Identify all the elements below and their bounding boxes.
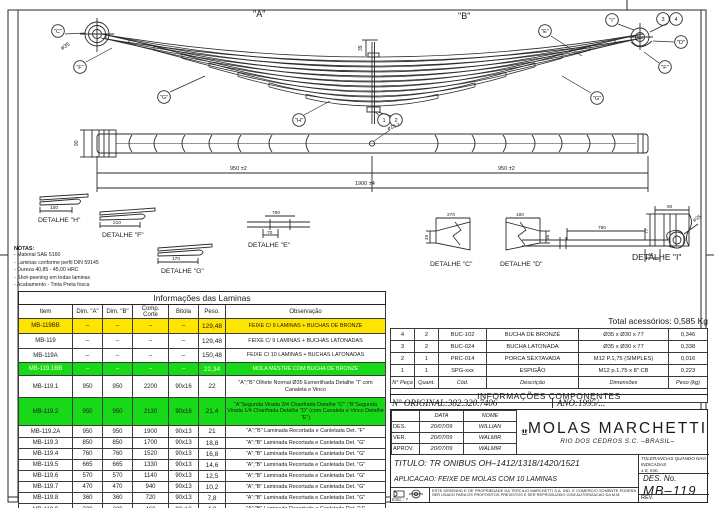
componentes-col-header: Peso (kg) [669,377,708,389]
laminas-cell-dim-b: 470 [103,482,133,493]
laminas-cell-bitola: 90x13 [169,426,199,438]
svg-text:3: 3 [661,17,664,23]
notes-block: NOTAS: - Material SAE 5160- Laminas conf… [14,246,144,290]
laminas-cell-dim-a: – [73,319,103,334]
laminas-cell-bitola: 90x13 [169,482,199,493]
laminas-table: Informações das Laminas ItemDim. "A"Dim.… [18,291,386,508]
laminas-col-header: Observação [226,305,386,319]
svg-text:"G": "G" [160,95,168,101]
laminas-cell-item: MB-119.7 [19,482,73,493]
laminas-cell-item: MB-119.4 [19,449,73,460]
laminas-cell-dim-b: 360 [103,493,133,504]
laminas-cell-peso: 21 [199,426,226,438]
componentes-cell: BUC-024 [439,341,487,353]
componentes-col-header: Descrição [487,377,579,389]
laminas-cell-corte: – [133,349,169,363]
detail-g-dim: 170 [172,256,180,262]
detail-g-label: DETALHE "G" [161,268,204,275]
detail-h-sketch [40,194,88,213]
laminas-cell-dim-b: – [103,319,133,334]
dim-plan-width: 90 [74,140,80,146]
laminas-cell-dim-a: 850 [73,438,103,449]
laminas-cell-dim-a: – [73,334,103,349]
componentes-cell: M12 p.1,75 x 8" CB [579,365,669,377]
svg-text:"I": "I" [609,18,615,24]
laminas-cell-corte: 1330 [133,460,169,471]
laminas-cell-item: MB-119.6 [19,471,73,482]
laminas-cell-dim-b: 230 [103,504,133,508]
laminas-cell-obs: FEIXE C/ 9 LAMINAS + BUCHAS DE BRONZE [226,319,386,334]
dim-right-half: 950 ±2 [498,166,515,172]
laminas-cell-obs: "A";"B" Laminada Recortada e Canletada D… [226,449,386,460]
note-item: - Dureza 40,85 - 45,00 HRC [14,267,144,275]
laminas-cell-corte: 460 [133,504,169,508]
approval-cell: 20/07/09 [420,444,464,455]
view-label-a: "A" [253,9,265,19]
laminas-cell-dim-a: – [73,349,103,363]
laminas-cell-bitola: 90x13 [169,471,199,482]
svg-text:"E": "E" [541,29,549,35]
laminas-cell-obs: "A";"B" Laminada Recortada e Canletada D… [226,438,386,449]
laminas-cell-item: MB-119A [19,349,73,363]
approval-cell: WALMIR [464,433,517,444]
laminas-cell-bitola: 90x13 [169,438,199,449]
approval-cell: 20/07/09 [420,422,464,433]
laminas-cell-dim-b: – [103,349,133,363]
legal-text: ESTE DESENHO E DE PROPRIEDADE DA TERCILI… [430,488,638,502]
laminas-cell-corte: – [133,334,169,349]
componentes-cell: 0,016 [669,353,708,365]
laminas-cell-bitola: 90x13 [169,493,199,504]
laminas-row: MB-119.2A950950190090x1321"A";"B" Lamina… [19,426,386,438]
svg-text:"C": "C" [54,29,62,35]
laminas-cell-dim-b: 850 [103,438,133,449]
laminas-row: MB-119.2950950213090x1621,4"A"Segunda Vi… [19,398,386,426]
balloon-g_left: "G" [158,91,171,104]
componentes-cell: ESPIGÃO [487,365,579,377]
total-acessorios: Total acessórios: 0,585 Kg [390,316,708,326]
approval-cell: APROV. [392,444,420,455]
dim-total-length: 1900 ±4 [355,181,375,187]
laminas-cell-obs: FEIXE C/ 9 LAMINAS + BUCHAS LATONADAS [226,334,386,349]
laminas-row: MB-119.5665665133090x1314,6"A";"B" Lamin… [19,460,386,471]
approval-cell: DES. [392,422,420,433]
componentes-cell: 1 [415,353,439,365]
componentes-cell: Ø35 x Ø30 x 77 [579,329,669,341]
detail-c-sketch [426,218,470,250]
approval-cell: 20/07/09 [420,433,464,444]
drawing-number-box: DES. No. MB–119 [639,473,709,494]
componentes-cell: PORCA SEXTAVADA [487,353,579,365]
componentes-col-header: Quant. [415,377,439,389]
componentes-cell: 2 [415,341,439,353]
detail-i-dim-w: 90 [667,204,673,210]
laminas-cell-dim-a: 950 [73,426,103,438]
componentes-row: 42BUC-102BUCHA DE BRONZEØ35 x Ø30 x 770,… [391,329,708,341]
laminas-cell-obs: "A";"B" Olhete Normal Ø35 Esmerilhada De… [226,376,386,398]
ano: ANO:1995/... [552,398,708,408]
laminas-row: MB-119.1BB––––22,34MOLA MESTRE COM BUCHA… [19,363,386,376]
balloon-g_right: "G" [591,92,604,105]
laminas-col-header: Dim. "A" [73,305,103,319]
detail-c-dim-w: 270 [447,212,455,218]
titulo-value: TR ONIBUS OH–1412/1318/1420/1521 [429,458,579,468]
laminas-cell-dim-a: 760 [73,449,103,460]
componentes-table: 42BUC-102BUCHA DE BRONZEØ35 x Ø30 x 770,… [390,328,708,403]
laminas-cell-peso: 10,2 [199,482,226,493]
laminas-cell-dim-a: 665 [73,460,103,471]
componentes-cell: SPG-xxx [439,365,487,377]
laminas-cell-obs: "A";"B" Laminada Recortada e Canletada D… [226,426,386,438]
laminas-cell-dim-b: – [103,334,133,349]
numero-original: N° ORIGINAL:382.320.7406 [390,398,552,408]
laminas-row: MB-119.3850850170090x1318,8"A";"B" Lamin… [19,438,386,449]
approval-row: APROV.20/07/09WALMIR [392,444,517,455]
laminas-col-header: Comp. Corte [133,305,169,319]
laminas-cell-dim-b: 950 [103,376,133,398]
laminas-col-header: Dim. "B" [103,305,133,319]
laminas-row: MB-119.1950950220090x1622"A";"B" Olhete … [19,376,386,398]
detail-f-dim: 210 [113,220,121,226]
laminas-col-header: Peso. [199,305,226,319]
laminas-cell-corte: 1700 [133,438,169,449]
laminas-cell-bitola: – [169,334,199,349]
laminas-cell-bitola: 90x16 [169,376,199,398]
approval-row: DES.20/07/09WILLIAN [392,422,517,433]
tolerances-line1: TOLERANCIAS QUANDO NAO INDICADAS [641,456,707,468]
componentes-cell: 1 [391,365,415,377]
marchetti-logo-icon [521,413,528,451]
componentes-row: 32BUC-024BUCHA LATONADAØ35 x Ø30 x 770,3… [391,341,708,353]
detail-e-label: DETALHE "E" [248,242,291,249]
laminas-cell-corte: 940 [133,482,169,493]
laminas-cell-peso: 7,8 [199,493,226,504]
laminas-cell-peso: 129,48 [199,319,226,334]
detail-i-label: DETALHE "I" [632,252,681,262]
view-label-b: "B" [458,11,470,21]
detail-f-sketch [100,208,155,228]
note-item: - Acabamento - Tinta Preta fosca [14,282,144,290]
laminas-cell-obs: MOLA MESTRE COM BUCHA DE BRONZE [226,363,386,376]
laminas-cell-obs: "A";"B" Laminada Recortada e Canletada D… [226,504,386,508]
laminas-cell-obs: "A"Segunda Virada 3/4 Chanfrada Detalhe … [226,398,386,426]
laminas-cell-dim-a: 230 [73,504,103,508]
laminas-row: MB-119.836036072090x137,8"A";"B" Laminad… [19,493,386,504]
laminas-cell-item: MB-119.2A [19,426,73,438]
componentes-col-header: Dimensões [579,377,669,389]
svg-text:1: 1 [382,118,385,124]
laminas-cell-peso: 129,48 [199,334,226,349]
laminas-cell-bitola: 90x13 [169,460,199,471]
leaf2-dim-off: 40 [648,252,654,258]
approval-row: VER.20/07/09WALMIR [392,433,517,444]
laminas-cell-corte: 1140 [133,471,169,482]
componentes-cell: 4 [391,329,415,341]
company-name: MOLAS MARCHETTI [528,420,707,438]
balloon-n4: 4 [670,13,683,26]
componentes-cell: 0,223 [669,365,708,377]
componentes-col-header: N° Peça [391,377,415,389]
componentes-cell: 0,338 [669,341,708,353]
laminas-cell-dim-a: 950 [73,376,103,398]
laminas-cell-dim-b: 950 [103,426,133,438]
laminas-cell-obs: "A";"B" Laminada Recortada e Canletada D… [226,460,386,471]
laminas-cell-bitola: 90x13 [169,504,199,508]
laminas-row: MB-119A––––150,48FEIXE C/ 10 LAMINAS + B… [19,349,386,363]
detail-g-sketch [158,244,212,264]
detail-e-dim-top: 780 [272,210,280,216]
laminas-cell-obs: FEIXE C/ 10 LAMINAS + BUCHAS LATONADAS [226,349,386,363]
approval-table: DATA NOME DES.20/07/09WILLIANVER.20/07/0… [391,410,517,455]
laminas-cell-corte: – [133,319,169,334]
laminas-cell-corte: 2200 [133,376,169,398]
laminas-row: MB-119.923023046090x134,8"A";"B" Laminad… [19,504,386,508]
company-address: RIO DOS CEDROS S.C. –BRASIL– [528,438,707,445]
bottom-strip: ESC.: ? ESTE DESENHO E DE PROPRIEDADE DA… [391,487,639,502]
laminas-cell-item: MB-119.5 [19,460,73,471]
projection-box: ESC.: ? [391,488,430,502]
componentes-cell: 2 [415,329,439,341]
componentes-cell: Ø35 x Ø30 x 77 [579,341,669,353]
componentes-cell: BUCHA LATONADA [487,341,579,353]
laminas-row: MB-119.6570570114090x1312,5"A";"B" Lamin… [19,471,386,482]
laminas-cell-bitola: 90x13 [169,449,199,460]
approval-cell: WALMIR [464,444,517,455]
detail-e-dim-bottom: 70 [267,230,273,236]
drawing-sheet: "C""F""G""H""E""I"34"D""F""G"12 "A" "B" … [0,0,720,508]
laminas-cell-dim-a: 950 [73,398,103,426]
componentes-col-header: Cód. [439,377,487,389]
componentes-cell: M12 P.1,75 (SIMPLES) [579,353,669,365]
laminas-cell-peso: 12,5 [199,471,226,482]
laminas-cell-item: MB-119.1 [19,376,73,398]
componentes-header-row: N° PeçaQuant.Cód.DescriçãoDimensõesPeso … [391,377,708,389]
note-item: - Material SAE 5160 [14,252,144,260]
componentes-row: 11SPG-xxxESPIGÃOM12 p.1,75 x 8" CB0,223 [391,365,708,377]
escala: ESC.: ? [392,497,408,502]
laminas-cell-corte: 720 [133,493,169,504]
componentes-cell: 0,346 [669,329,708,341]
laminas-cell-dim-b: 760 [103,449,133,460]
laminas-cell-peso: 14,6 [199,460,226,471]
balloon-e: "E" [539,25,552,38]
dim-bolt-stick: 39 [358,45,364,51]
componentes-cell: BUC-102 [439,329,487,341]
company-logo-area: MOLAS MARCHETTI RIO DOS CEDROS S.C. –BRA… [517,410,707,455]
laminas-cell-item: MB-119BB [19,319,73,334]
laminas-row: MB-119.4760760152090x1316,8"A";"B" Lamin… [19,449,386,460]
balloon-d: "D" [675,36,688,49]
laminas-row: MB-119––––129,48FEIXE C/ 9 LAMINAS + BUC… [19,334,386,349]
titulo-row: TITULO: TR ONIBUS OH–1412/1318/1420/1521 [391,454,639,471]
laminas-row: MB-119BB––––129,48FEIXE C/ 9 LAMINAS + B… [19,319,386,334]
laminas-cell-obs: "A";"B" Laminada Recortada e Canletada D… [226,482,386,493]
componentes-cell: 1 [415,365,439,377]
svg-text:"G": "G" [593,96,601,102]
tolerances-box: TOLERANCIAS QUANDO NAO INDICADAS ± 0, mm… [639,454,709,473]
componentes-cell: 2 [391,353,415,365]
leaf2-dim-len: 780 [598,225,606,231]
laminas-table-title: Informações das Laminas [19,292,386,305]
laminas-col-header: Item [19,305,73,319]
componentes-cell: PRC-014 [439,353,487,365]
detail-d-dim-w: 180 [516,212,524,218]
componentes-cell: BUCHA DE BRONZE [487,329,579,341]
laminas-cell-item: MB-119.2 [19,398,73,426]
svg-text:"D": "D" [677,40,685,46]
approval-cell: VER. [392,433,420,444]
detail-d-label: DETALHE "D" [500,261,543,268]
note-item: - Shot-peening em todas laminas [14,275,144,283]
laminas-cell-peso: 4,8 [199,504,226,508]
balloon-n1: 1 [378,114,391,127]
laminas-cell-item: MB-119.8 [19,493,73,504]
laminas-cell-dim-a: 360 [73,493,103,504]
des-no-label: DES. No. [643,474,709,483]
dim-left-half: 950 ±2 [230,166,247,172]
aplicacao-row: APLICACAO: FEIXE DE MOLAS COM 10 LAMINAS [391,471,639,487]
dim-eye-dia: ø35 [60,42,71,52]
laminas-cell-corte: 1900 [133,426,169,438]
svg-text:"F": "F" [661,65,668,71]
laminas-header-row: ItemDim. "A"Dim. "B"Comp. CorteBitolaPes… [19,305,386,319]
laminas-cell-dim-a: 570 [73,471,103,482]
titulo-label: TITULO: [394,458,427,468]
svg-text:"H": "H" [295,118,303,124]
laminas-cell-bitola: – [169,319,199,334]
svg-text:4: 4 [674,17,677,23]
detail-h-label: DETALHE "H" [38,217,81,224]
laminas-cell-peso: 150,48 [199,349,226,363]
laminas-cell-peso: 18,8 [199,438,226,449]
laminas-cell-item: MB-119 [19,334,73,349]
laminas-cell-bitola: – [169,363,199,376]
laminas-cell-item: MB-119.1BB [19,363,73,376]
balloon-f_right: "F" [659,61,672,74]
laminas-cell-peso: 21,4 [199,398,226,426]
approval-cell: WILLIAN [464,422,517,433]
detail-d-sketch [506,218,550,250]
approval-corner [392,411,420,422]
balloon-i: "I" [606,14,619,27]
laminas-cell-dim-b: 570 [103,471,133,482]
detail-f-label: DETALHE "F" [102,232,144,239]
laminas-cell-peso: 22,34 [199,363,226,376]
balloon-f_left: "F" [74,61,87,74]
detail-e-sketch [247,216,310,238]
svg-text:"F": "F" [76,65,83,71]
laminas-cell-bitola: – [169,349,199,363]
note-item: - Laminas conforme perfil DIN 59145 [14,260,144,268]
balloon-h: "H" [293,114,306,127]
approval-col-data: DATA [420,411,464,422]
laminas-cell-obs: "A";"B" Laminada Recortada e Canletada D… [226,493,386,504]
detail-c-label: DETALHE "C" [430,261,473,268]
laminas-row: MB-119.747047094090x1310,2"A";"B" Lamina… [19,482,386,493]
laminas-cell-dim-a: 470 [73,482,103,493]
laminas-cell-peso: 16,8 [199,449,226,460]
laminas-cell-corte: 2130 [133,398,169,426]
laminas-cell-item: MB-119.9 [19,504,73,508]
approval-col-nome: NOME [464,411,517,422]
componentes-row: 21PRC-014PORCA SEXTAVADAM12 P.1,75 (SIMP… [391,353,708,365]
laminas-cell-obs: "A";"B" Laminada Recortada e Canletada D… [226,471,386,482]
componentes-cell: 3 [391,341,415,353]
laminas-cell-dim-b: 665 [103,460,133,471]
detail-h-dim: 100 [50,205,58,211]
laminas-cell-corte: – [133,363,169,376]
laminas-col-header: Bitola [169,305,199,319]
laminas-cell-dim-b: – [103,363,133,376]
rev-box: REV. [639,494,709,502]
laminas-cell-item: MB-119.3 [19,438,73,449]
aplicacao-value: FEIXE DE MOLAS COM 10 LAMINAS [438,476,557,483]
laminas-cell-peso: 22 [199,376,226,398]
title-block: DATA NOME DES.20/07/09WILLIANVER.20/07/0… [390,409,708,503]
laminas-cell-dim-b: 950 [103,398,133,426]
laminas-cell-dim-a: – [73,363,103,376]
balloon-c: "C" [52,25,65,38]
detail-d-dim-h: 35 [545,234,551,240]
aplicacao-label: APLICACAO: [394,476,436,483]
laminas-cell-bitola: 90x16 [169,398,199,426]
detail-c-dim-h: 45 [424,234,430,240]
laminas-cell-corte: 1520 [133,449,169,460]
